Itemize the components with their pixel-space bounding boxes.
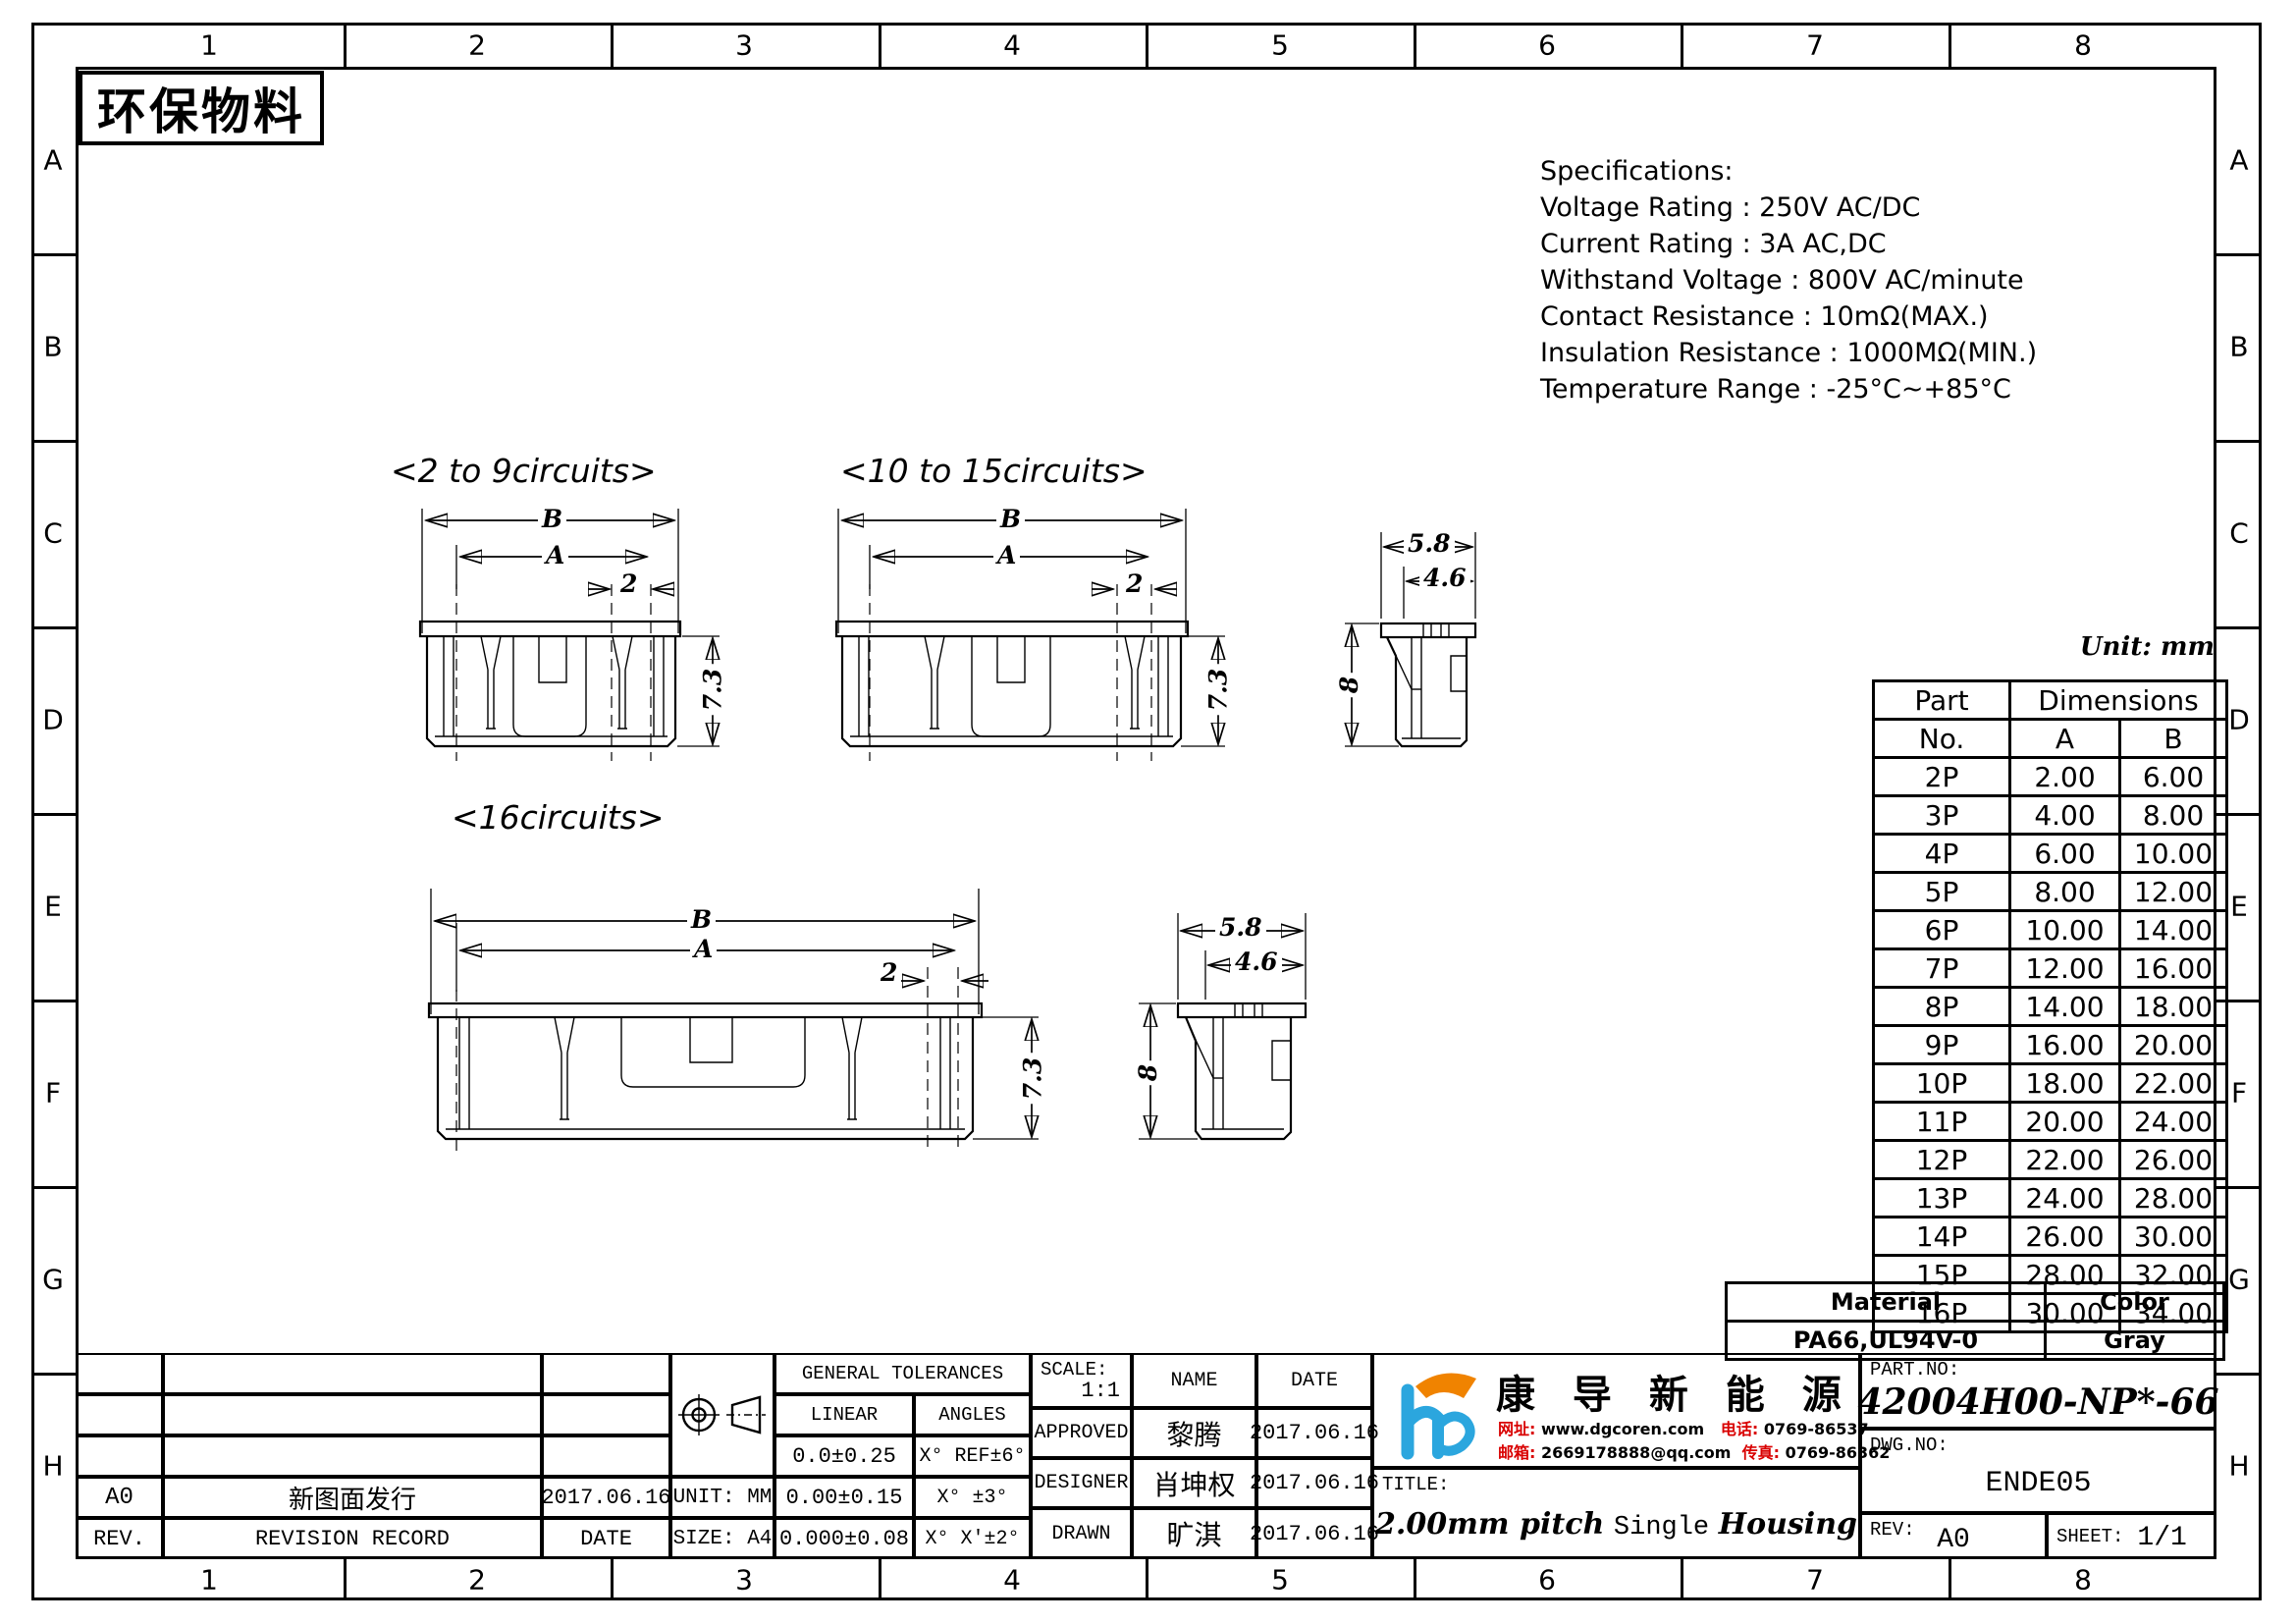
scale-cell: SCALE: 1:1: [1031, 1353, 1132, 1408]
dim-depth-inner: 4.6: [1419, 566, 1470, 590]
dim-B: B: [538, 507, 566, 531]
logo-hd-monogram: [1408, 1390, 1470, 1453]
cell-b: 12.00: [2120, 873, 2227, 911]
partno-value: 42004H00-NP*-66: [1857, 1381, 2218, 1423]
revision-cell: [76, 1353, 163, 1394]
table-row: 6P10.0014.00: [1874, 911, 2227, 949]
table-row: 7P12.0016.00: [1874, 949, 2227, 988]
tolerance-linear-value: 0.000±0.08: [774, 1518, 914, 1559]
drawing-sheet: 1 2 3 4 5 6 7 8 1 2 3 4 5 6 7 8 A B C D …: [0, 0, 2296, 1624]
designer-label: DESIGNER: [1031, 1458, 1132, 1508]
cell-a: 20.00: [2010, 1103, 2120, 1141]
cell-b: 10.00: [2120, 835, 2227, 873]
col-header-a: A: [2010, 720, 2120, 758]
tolerance-linear-value: 0.0±0.25: [774, 1435, 914, 1477]
rev-value: A0: [1937, 1525, 1970, 1555]
tolerance-angle-value: X° REF±6°: [914, 1435, 1031, 1477]
cell-a: 12.00: [2010, 949, 2120, 988]
table-row: 5P8.0012.00: [1874, 873, 2227, 911]
date-header: DATE: [1256, 1353, 1372, 1408]
unit-cell: UNIT: MM: [670, 1477, 774, 1518]
scale-label: SCALE:: [1041, 1359, 1107, 1380]
dim-side-height: 8: [1337, 673, 1362, 697]
company-contact-line2: 邮箱: 2669178888@qq.com 传真: 0769-86362: [1498, 1439, 1890, 1463]
revision-cell: [163, 1435, 542, 1477]
revision-cell: [542, 1353, 670, 1394]
table-row: 11P20.0024.00: [1874, 1103, 2227, 1141]
sheet-label: SHEET:: [2056, 1526, 2123, 1547]
revision-cell: [163, 1394, 542, 1435]
dim-side-height: 8: [1136, 1060, 1160, 1085]
dwgno-value: ENDE05: [1985, 1467, 2091, 1500]
cell-b: 22.00: [2120, 1064, 2227, 1103]
table-row: 8P14.0018.00: [1874, 988, 2227, 1026]
table-header-row: No. A B: [1874, 720, 2227, 758]
dim-depth-inner: 4.6: [1231, 949, 1282, 974]
logo-orange-swoosh: [1415, 1374, 1476, 1398]
revision-record-header: REVISION RECORD: [163, 1518, 542, 1559]
cell-part: 12P: [1874, 1141, 2010, 1179]
view2-front: [836, 509, 1225, 761]
projection-symbol-cell: [670, 1353, 774, 1477]
cell-b: 18.00: [2120, 988, 2227, 1026]
approved-name: 黎腾: [1132, 1408, 1256, 1458]
sheet-cell: SHEET: 1/1: [2047, 1513, 2216, 1559]
table-row: 9P16.0020.00: [1874, 1026, 2227, 1064]
dim-pitch: 2: [1122, 571, 1147, 596]
material-table: Material Color PA66,UL94V-0 Gray: [1725, 1281, 2225, 1361]
company-cell: 康 导 新 能 源 网址: www.dgcoren.com 电话: 0769-8…: [1372, 1353, 1860, 1468]
cell-a: 14.00: [2010, 988, 2120, 1026]
view3-front: [429, 889, 1039, 1151]
color-header: Color: [2046, 1283, 2224, 1322]
dim-B: B: [996, 507, 1025, 531]
cell-a: 6.00: [2010, 835, 2120, 873]
drawn-date: 2017.06.16: [1256, 1508, 1372, 1559]
dim-B: B: [687, 907, 716, 932]
revision-cell: [542, 1394, 670, 1435]
dim-pitch: 2: [616, 571, 641, 596]
company-logo: [1386, 1361, 1484, 1463]
cell-part: 9P: [1874, 1026, 2010, 1064]
cell-a: 22.00: [2010, 1141, 2120, 1179]
cell-a: 26.00: [2010, 1218, 2120, 1256]
col-header-part: Part: [1874, 681, 2010, 720]
web-value: www.dgcoren.com: [1541, 1420, 1704, 1438]
col-header-dimensions: Dimensions: [2010, 681, 2227, 720]
drawn-label: DRAWN: [1031, 1508, 1132, 1559]
company-name: 康 导 新 能 源: [1496, 1363, 1853, 1420]
cell-a: 8.00: [2010, 873, 2120, 911]
mail-label: 邮箱:: [1498, 1443, 1535, 1462]
cell-part: 8P: [1874, 988, 2010, 1026]
revision-cell: [76, 1394, 163, 1435]
cell-b: 16.00: [2120, 949, 2227, 988]
table-row: 12P22.0026.00: [1874, 1141, 2227, 1179]
tolerance-angle-value: X° ±3°: [914, 1477, 1031, 1518]
size-cell: SIZE: A4: [670, 1518, 774, 1559]
tolerances-angles-header: ANGLES: [914, 1394, 1031, 1435]
third-angle-projection-icon: [677, 1383, 768, 1446]
side-view2: [1139, 913, 1306, 1139]
tel-label: 电话:: [1721, 1420, 1758, 1438]
cell-b: 14.00: [2120, 911, 2227, 949]
sheet-value: 1/1: [2137, 1523, 2186, 1553]
cell-part: 4P: [1874, 835, 2010, 873]
table-row: 13P24.0028.00: [1874, 1179, 2227, 1218]
partno-label: PART.NO:: [1870, 1359, 1959, 1380]
cell-part: 7P: [1874, 949, 2010, 988]
revision-cell: [163, 1353, 542, 1394]
title-label: TITLE:: [1382, 1474, 1449, 1495]
col-header-b: B: [2120, 720, 2227, 758]
table-row: 4P6.0010.00: [1874, 835, 2227, 873]
tolerance-linear-value: 0.00±0.15: [774, 1477, 914, 1518]
approved-label: APPROVED: [1031, 1408, 1132, 1458]
table-header-row: Part Dimensions: [1874, 681, 2227, 720]
cell-a: 24.00: [2010, 1179, 2120, 1218]
designer-date: 2017.06.16: [1256, 1458, 1372, 1508]
dim-height: 7.3: [1205, 665, 1230, 716]
tolerances-linear-header: LINEAR: [774, 1394, 914, 1435]
view1-front: [420, 509, 720, 761]
title-part1: 2.00mm pitch: [1375, 1507, 1604, 1542]
cell-part: 2P: [1874, 758, 2010, 796]
approved-date: 2017.06.16: [1256, 1408, 1372, 1458]
cell-a: 2.00: [2010, 758, 2120, 796]
drawn-name: 旷淇: [1132, 1508, 1256, 1559]
title-cell: TITLE: 2.00mm pitch Single Housing: [1372, 1468, 1860, 1559]
cell-part: 5P: [1874, 873, 2010, 911]
revision-date-header: DATE: [542, 1518, 670, 1559]
dwgno-cell: DWG.NO: ENDE05: [1860, 1429, 2216, 1513]
rev-cell: REV: A0: [1860, 1513, 2047, 1559]
table-row: 10P18.0022.00: [1874, 1064, 2227, 1103]
dim-height: 7.3: [700, 665, 724, 716]
cell-part: 11P: [1874, 1103, 2010, 1141]
dim-height: 7.3: [1020, 1054, 1044, 1105]
cell-part: 14P: [1874, 1218, 2010, 1256]
cell-b: 6.00: [2120, 758, 2227, 796]
cell-b: 30.00: [2120, 1218, 2227, 1256]
fax-label: 传真:: [1742, 1443, 1780, 1462]
cell-b: 24.00: [2120, 1103, 2227, 1141]
revision-record: 新图面发行: [163, 1477, 542, 1518]
scale-value: 1:1: [1081, 1379, 1120, 1403]
drawing-title: 2.00mm pitch Single Housing: [1375, 1507, 1857, 1543]
company-contact-line1: 网址: www.dgcoren.com 电话: 0769-86537: [1498, 1416, 1869, 1439]
table-header-row: Material Color: [1727, 1283, 2224, 1322]
cell-part: 13P: [1874, 1179, 2010, 1218]
cell-b: 26.00: [2120, 1141, 2227, 1179]
revision-cell: [542, 1435, 670, 1477]
title-part3: Housing: [1719, 1507, 1857, 1542]
tel-value: 0769-86537: [1764, 1420, 1869, 1438]
table-row: 3P4.008.00: [1874, 796, 2227, 835]
title-part2: Single: [1614, 1513, 1709, 1543]
part-dimensions-table: Part Dimensions No. A B 2P2.006.00 3P4.0…: [1872, 679, 2228, 1333]
rev-label: REV:: [1870, 1519, 1915, 1541]
tolerances-title: GENERAL TOLERANCES: [774, 1353, 1031, 1394]
table-row: 2P2.006.00: [1874, 758, 2227, 796]
cell-b: 20.00: [2120, 1026, 2227, 1064]
mail-value: 2669178888@qq.com: [1541, 1443, 1731, 1462]
revision-date: 2017.06.16: [542, 1477, 670, 1518]
dim-A: A: [542, 543, 568, 568]
dim-depth-outer: 5.8: [1404, 531, 1455, 556]
revision-rev-header: REV.: [76, 1518, 163, 1559]
material-header: Material: [1727, 1283, 2046, 1322]
revision-cell: [76, 1435, 163, 1477]
cell-a: 16.00: [2010, 1026, 2120, 1064]
cell-a: 10.00: [2010, 911, 2120, 949]
dim-A: A: [993, 543, 1020, 568]
designer-name: 肖坤权: [1132, 1458, 1256, 1508]
cell-b: 8.00: [2120, 796, 2227, 835]
cell-b: 28.00: [2120, 1179, 2227, 1218]
tolerance-angle-value: X° X'±2°: [914, 1518, 1031, 1559]
web-label: 网址:: [1498, 1420, 1535, 1438]
col-header-no: No.: [1874, 720, 2010, 758]
dwgno-label: DWG.NO:: [1870, 1435, 1949, 1456]
revision-rev: A0: [76, 1477, 163, 1518]
table-row: 14P26.0030.00: [1874, 1218, 2227, 1256]
cell-part: 6P: [1874, 911, 2010, 949]
cell-a: 4.00: [2010, 796, 2120, 835]
cell-part: 3P: [1874, 796, 2010, 835]
cell-a: 18.00: [2010, 1064, 2120, 1103]
partno-cell: PART.NO: 42004H00-NP*-66: [1860, 1353, 2216, 1429]
dim-pitch: 2: [877, 960, 901, 985]
cell-part: 10P: [1874, 1064, 2010, 1103]
name-header: NAME: [1132, 1353, 1256, 1408]
dim-depth-outer: 5.8: [1215, 915, 1266, 940]
dim-A: A: [690, 937, 717, 961]
